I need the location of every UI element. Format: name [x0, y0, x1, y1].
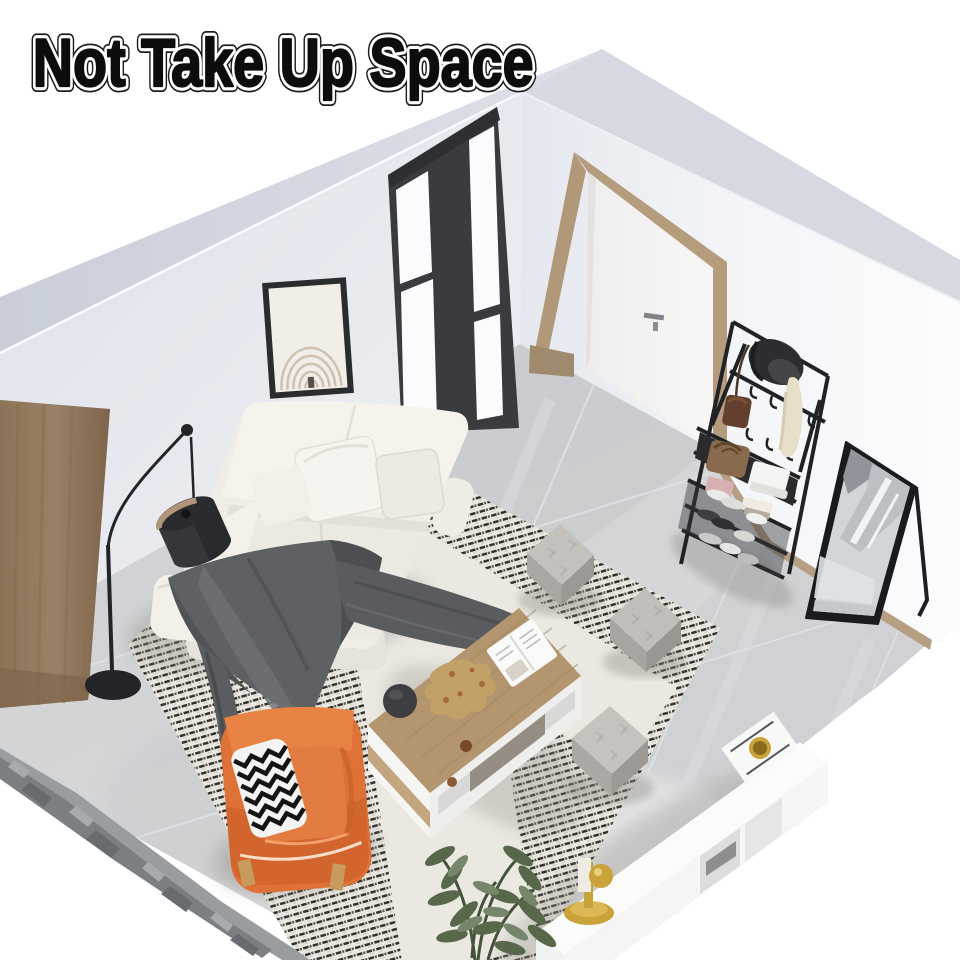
svg-text:Not Take Up Space: Not Take Up Space [33, 26, 534, 101]
